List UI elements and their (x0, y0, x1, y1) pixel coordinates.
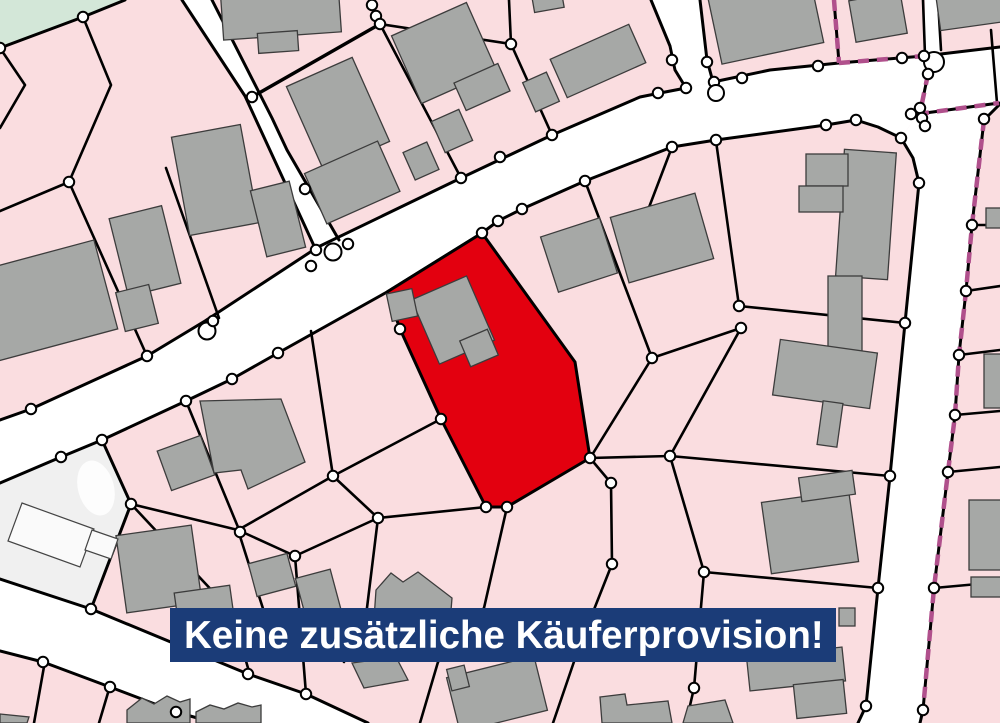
svg-text:Keine zusätzliche Käuferprovis: Keine zusätzliche Käuferprovision! (184, 614, 824, 657)
